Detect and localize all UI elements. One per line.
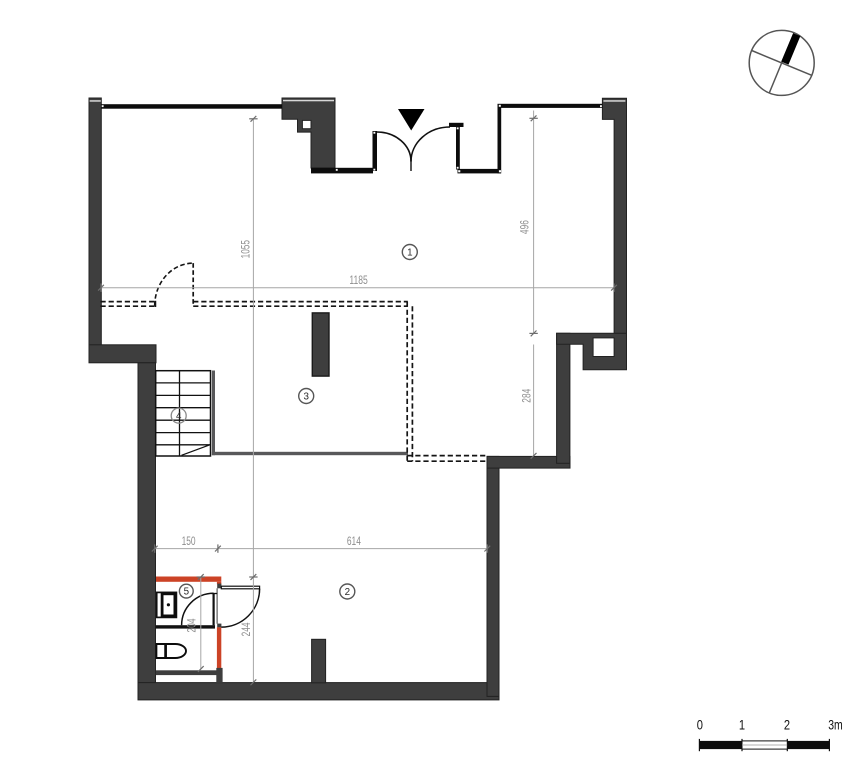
svg-text:1: 1 <box>739 717 745 733</box>
svg-text:284: 284 <box>519 388 533 402</box>
svg-text:204: 204 <box>184 618 198 632</box>
svg-text:0: 0 <box>697 717 703 733</box>
svg-text:150: 150 <box>182 534 196 548</box>
svg-text:496: 496 <box>517 220 531 234</box>
svg-text:1055: 1055 <box>238 240 252 259</box>
svg-text:1185: 1185 <box>349 273 368 287</box>
svg-text:4: 4 <box>176 411 182 422</box>
svg-text:5: 5 <box>184 587 190 598</box>
svg-text:1: 1 <box>407 248 412 259</box>
svg-text:614: 614 <box>347 534 361 548</box>
svg-text:2: 2 <box>784 717 790 733</box>
svg-text:3: 3 <box>303 392 309 403</box>
svg-text:2: 2 <box>345 587 350 598</box>
svg-text:244: 244 <box>239 622 253 636</box>
svg-text:3m: 3m <box>828 717 843 733</box>
